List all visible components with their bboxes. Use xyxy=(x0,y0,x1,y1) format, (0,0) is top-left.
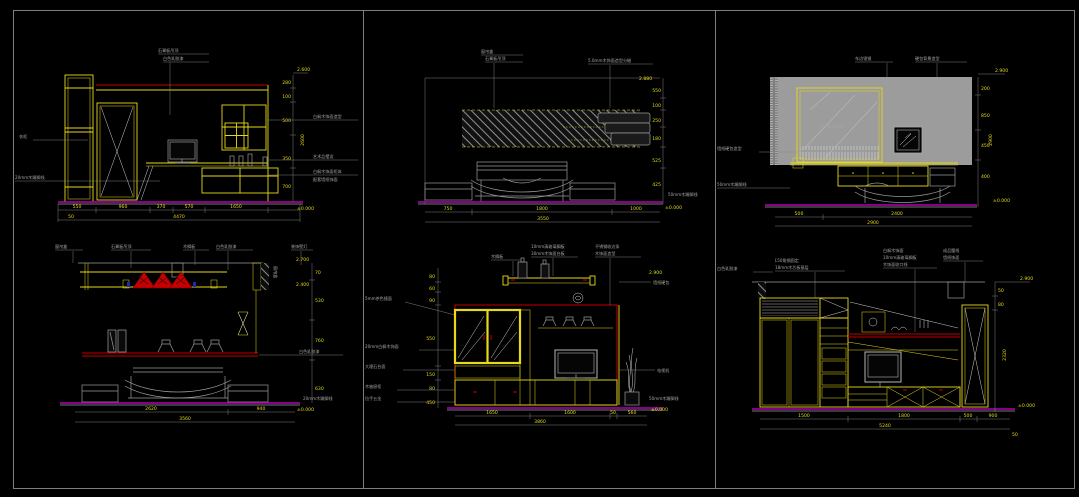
floor-line xyxy=(447,408,663,410)
annotation: 硬包背景造型 xyxy=(915,55,940,61)
dim-text: 90 xyxy=(429,298,435,304)
right-dimension-chain: 280 100 500 350 700 2600 2.600 ±0.000 xyxy=(282,67,314,212)
dim-text: 1650 xyxy=(230,204,242,210)
annotation: 50mm木踢脚线 xyxy=(649,395,679,401)
annotation: L50角钢固定 xyxy=(775,257,799,263)
dim-text: 960 xyxy=(119,204,128,210)
dim-total: 3550 xyxy=(537,216,549,222)
bed xyxy=(125,368,231,398)
bottom-dimensions: 750 1800 1000 3550 xyxy=(425,206,660,222)
decor-bottles xyxy=(230,154,267,166)
annotation: 木饰面造型 xyxy=(595,250,615,256)
dim-text: 630 xyxy=(315,386,324,392)
dim-text: 80 xyxy=(429,274,435,280)
dim-text: 180 xyxy=(652,136,661,142)
annotation: 白色乳胶漆 xyxy=(163,55,183,61)
floor-line xyxy=(60,403,300,405)
elevation-panel-dresser-wall: 艺术墙纸饰面 墙纸硬包造型 xyxy=(715,10,1075,240)
p2-drawing: 750 1800 1000 3550 550 100 250 180 525 4… xyxy=(363,10,715,240)
bottom-dimensions: 2620 940 3560 20mm木踢脚线 xyxy=(75,395,333,422)
desk-monitor xyxy=(865,352,901,387)
elevation-panel-bed-wall: 750 1800 1000 3550 550 100 250 180 525 4… xyxy=(363,10,715,240)
dim-text: 530 xyxy=(315,298,324,304)
annotation: 墙纸硬包造型 xyxy=(717,145,742,151)
dim-text: 150 xyxy=(426,372,435,378)
annotation: 墙纸饰面 xyxy=(943,254,959,260)
annotation: 窗帘盒 xyxy=(273,266,279,278)
dim-text: 750 xyxy=(444,206,453,212)
dim-text: 250 xyxy=(652,118,661,124)
annotation: 拉手五金 xyxy=(365,395,381,401)
dim-text: 1500 xyxy=(798,413,810,419)
level-marker: ±0.000 xyxy=(1018,403,1035,409)
dim-total: 2600 xyxy=(300,134,306,146)
annotation: 车边银镜 xyxy=(855,55,871,61)
dim-text: 900 xyxy=(989,413,998,419)
right-labels: 2.900 墙纸硬包 电视机 50mm木踢脚线 ±0.000 xyxy=(619,270,679,413)
dim-text: 50 xyxy=(1012,432,1018,438)
annotation: 木抽屉柜 xyxy=(365,383,381,389)
nightstand-right xyxy=(228,385,268,402)
dim-text: 570 xyxy=(185,204,194,210)
elevation-panel-tv-wall: 80 60 90 550 150 80 450 5mm茶色镜面 20mm白枫木饰… xyxy=(363,240,715,488)
level-marker: 2.880 xyxy=(639,76,652,82)
glass-cabinet xyxy=(455,310,530,405)
dim-text: 370 xyxy=(157,204,166,210)
dim-text: 80 xyxy=(429,386,435,392)
annotation: 20mm白枫木饰面 xyxy=(365,343,399,349)
dim-text: 1800 xyxy=(898,413,910,419)
dim-text: 700 xyxy=(282,184,291,190)
dim-total: 3560 xyxy=(179,416,191,422)
monitor xyxy=(168,140,197,163)
dim-text: 550 xyxy=(652,88,661,94)
annotation: 配套墙纸饰面 xyxy=(313,176,338,182)
dim-text: 425 xyxy=(652,182,661,188)
books xyxy=(108,330,126,352)
dim-text: 280 xyxy=(282,80,291,86)
bottom-dimensions: 500 2400 2900 xyxy=(775,211,972,226)
annotation: 衣柜 xyxy=(19,133,27,139)
dim-text: 400 xyxy=(981,174,990,180)
cad-drawing-sheet: 550 960 370 570 1650 50 4470 280 100 500… xyxy=(0,0,1079,497)
annotation: 木搁板 xyxy=(183,243,195,249)
dim-text: 500 xyxy=(282,118,291,124)
annotation: 窗帘盒 xyxy=(55,243,67,249)
dim-text: 50 xyxy=(998,288,1004,294)
plant xyxy=(625,348,639,405)
picture-frame xyxy=(894,127,922,153)
dim-text: 500 xyxy=(795,211,804,217)
dim-text: 1000 xyxy=(630,206,642,212)
dim-text: 50 xyxy=(610,410,616,416)
annotation: 白枫木饰面造型 xyxy=(313,113,342,119)
right-dimension-chain: 200 850 450 400 2900 2.900 ±0.000 xyxy=(975,68,1010,207)
top-leader-labels: 白色乳胶漆 L50角钢固定 18mm木芯板基层 白枫木饰面 10mm清玻璃搁板 … xyxy=(717,247,983,332)
dim-text: 50 xyxy=(68,214,74,220)
dim-text: 200 xyxy=(981,86,990,92)
dim-text: 940 xyxy=(257,406,266,412)
nightstand-right xyxy=(570,183,615,200)
mini-chairs xyxy=(158,340,223,352)
annotation: 石膏板吊顶 xyxy=(485,55,505,61)
floor-line xyxy=(752,409,1015,411)
level-marker: 2.900 xyxy=(995,68,1008,74)
dim-total: 5240 xyxy=(879,423,891,429)
p5-drawing: 80 60 90 550 150 80 450 5mm茶色镜面 20mm白枫木饰… xyxy=(363,240,715,488)
annotation: 5mm茶色镜面 xyxy=(365,295,392,301)
dim-text: 100 xyxy=(282,94,291,100)
annotation: 不锈钢收边条 xyxy=(595,243,620,249)
mirror-grass-decor xyxy=(800,146,879,160)
elevation-panel-bed-shelf-wall: 窗帘盒 石膏板吊顶 木搁板 白色乳胶漆 装饰壁灯 窗帘盒 xyxy=(13,240,363,488)
floor-lamp xyxy=(238,312,248,335)
annotation: 电视机 xyxy=(657,367,669,373)
dim-text: 560 xyxy=(628,410,637,416)
dim-text: 525 xyxy=(652,158,661,164)
nightstand-left xyxy=(82,385,118,402)
dim-total: 2900 xyxy=(988,134,994,146)
dim-text: 70 xyxy=(315,270,321,276)
console-table xyxy=(790,163,958,186)
dim-total: 3860 xyxy=(534,419,546,425)
desk xyxy=(137,163,268,200)
floor-line xyxy=(418,202,663,204)
vases xyxy=(518,258,549,278)
annotation: 白枫木饰面 xyxy=(883,247,903,253)
left-leader-labels: 5mm茶色镜面 20mm白枫木饰面 大理石台面 木抽屉柜 拉手五金 xyxy=(365,295,455,402)
annotation: 20mm木踢脚线 xyxy=(15,174,45,180)
annotation: 艺术墙纸饰面 xyxy=(819,123,844,129)
elevation-panel-wardrobe-wall: 白色乳胶漆 L50角钢固定 18mm木芯板基层 白枫木饰面 10mm清玻璃搁板 … xyxy=(715,240,1075,488)
annotation: 成品腰线 xyxy=(943,247,959,253)
annotation: 50mm木踢脚线 xyxy=(668,191,698,197)
level-marker: ±0.000 xyxy=(297,206,314,212)
level-marker: ±0.000 xyxy=(651,407,668,413)
low-cabinet xyxy=(848,387,960,407)
top-leader-labels: 石膏板吊顶 白色乳胶漆 xyxy=(158,47,209,115)
dim-text: 1800 xyxy=(536,206,548,212)
annotation: 18mm木芯板基层 xyxy=(775,264,809,270)
dim-total: 2900 xyxy=(867,220,879,226)
p4-drawing: 窗帘盒 石膏板吊顶 木搁板 白色乳胶漆 装饰壁灯 窗帘盒 xyxy=(13,240,363,488)
ceiling-line xyxy=(752,282,985,299)
annotation: 白枫木饰面柜体 xyxy=(313,168,342,174)
bottom-dimensions: 550 960 370 570 1650 50 4470 xyxy=(58,204,300,222)
dim-text: 550 xyxy=(426,336,435,342)
sideboard xyxy=(202,168,278,193)
annotation: 石膏板吊顶 xyxy=(158,47,178,53)
dim-text: 350 xyxy=(282,156,291,162)
level-marker: ±0.000 xyxy=(665,205,682,211)
annotation: 艺术品摆设 xyxy=(313,153,333,159)
bed xyxy=(471,162,573,202)
annotation: 白色乳胶漆 xyxy=(216,243,236,249)
level-marker: ±0.000 xyxy=(297,407,314,413)
annotation: 木搁板 xyxy=(491,253,503,259)
mid-leader-label: 白色乳胶漆 xyxy=(259,348,343,355)
wardrobe xyxy=(760,298,848,407)
annotation: 30mm木饰面台板 xyxy=(531,250,565,256)
upper-shelf-chairs xyxy=(538,317,613,328)
annotation: 白色乳胶漆 xyxy=(299,348,319,354)
top-leader-labels: 木搁板 10mm清玻璃搁板 30mm木饰面台板 不锈钢收边条 木饰面造型 xyxy=(491,243,641,305)
level-marker: 2.900 xyxy=(649,270,662,276)
p1-drawing: 550 960 370 570 1650 50 4470 280 100 500… xyxy=(13,10,363,240)
annotation: 10mm清玻璃搁板 xyxy=(883,254,917,260)
annotation: 50mm木踢脚线 xyxy=(717,181,747,187)
level-marker: 2.900 xyxy=(1020,276,1033,282)
red-triangle-decor xyxy=(127,272,196,288)
floor-line xyxy=(58,202,303,204)
upper-cabinet xyxy=(222,105,266,150)
dim-text: 1600 xyxy=(564,410,576,416)
nightstand xyxy=(930,168,955,186)
right-dimension-chain: 70 530 760 630 2.700 2.400 ±0.000 xyxy=(296,257,324,413)
dim-text: 2620 xyxy=(145,406,157,412)
tv xyxy=(555,350,597,378)
elevation-panel-desk-wall: 550 960 370 570 1650 50 4470 280 100 500… xyxy=(13,10,363,240)
right-dimension-chain: 50 80 2320 2.900 ±0.000 xyxy=(992,276,1035,412)
wardrobe xyxy=(65,75,93,202)
dim-text: 850 xyxy=(981,113,990,119)
bottom-dimensions: 1650 1600 50 560 3860 xyxy=(455,410,647,425)
dim-text: 760 xyxy=(315,338,324,344)
annotation: 20mm木踢脚线 xyxy=(303,395,333,401)
nightstand-left xyxy=(425,183,472,200)
top-leader-labels: 车边银镜 硬包背景造型 xyxy=(855,55,967,77)
p6-drawing: 白色乳胶漆 L50角钢固定 18mm木芯板基层 白枫木饰面 10mm清玻璃搁板 … xyxy=(715,240,1075,488)
left-leader-labels: 衣柜 20mm木踢脚线 xyxy=(15,133,160,181)
annotation: 装饰壁灯 xyxy=(291,243,307,249)
annotation: 木饰面收口线 xyxy=(883,261,908,267)
level-marker: ±0.000 xyxy=(993,198,1010,204)
desk-niche xyxy=(848,302,960,360)
flower-decor xyxy=(573,293,583,303)
annotation: 5.0mm木饰面造型分缝 xyxy=(588,57,631,63)
annotation: 石膏板吊顶 xyxy=(111,243,131,249)
left-dimension-chain: 80 60 90 550 150 80 450 xyxy=(426,268,441,408)
annotation: 10mm清玻璃搁板 xyxy=(531,243,565,249)
p3-drawing: 艺术墙纸饰面 墙纸硬包造型 xyxy=(715,10,1075,240)
annotation: 窗帘盒 xyxy=(481,48,493,54)
dim-text: 500 xyxy=(964,413,973,419)
dim-text: 2400 xyxy=(891,211,903,217)
floor-line xyxy=(765,205,977,207)
dim-text: 60 xyxy=(429,286,435,292)
level-marker: 2.600 xyxy=(297,67,310,73)
annotation: 大理石台面 xyxy=(365,363,385,369)
dim-text: 450 xyxy=(426,400,435,406)
dim-text: 1650 xyxy=(486,410,498,416)
door xyxy=(962,305,988,407)
low-cabinet xyxy=(455,380,617,405)
bottom-dimensions: 1500 1800 500 900 5240 50 xyxy=(760,413,1018,438)
annotation: 白色乳胶漆 xyxy=(717,265,737,271)
level-marker: 2.700 xyxy=(296,257,309,263)
dim-total: 4470 xyxy=(173,214,185,220)
annotation: 墙纸硬包 xyxy=(653,279,669,285)
dim-text: 100 xyxy=(652,103,661,109)
dim-total: 2320 xyxy=(1002,349,1008,361)
dim-text: 550 xyxy=(73,204,82,210)
dim-text: 80 xyxy=(998,302,1004,308)
level-marker: 2.400 xyxy=(296,282,309,288)
door xyxy=(97,103,137,200)
